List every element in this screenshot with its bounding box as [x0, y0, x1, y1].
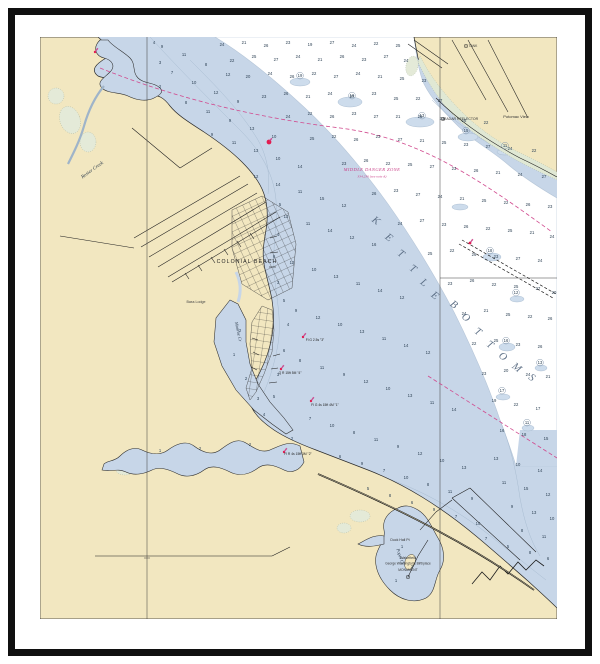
- depth-sounding: 24: [398, 221, 403, 226]
- depth-sounding: 26: [472, 252, 477, 257]
- depth-sounding: 16: [372, 242, 377, 247]
- depth-sounding: 12: [364, 379, 369, 384]
- landmark-dot-icon: [408, 577, 409, 578]
- depth-sounding: 25: [310, 136, 315, 141]
- depth-sounding: 26: [340, 54, 345, 59]
- depth-sounding: 21: [396, 114, 401, 119]
- depth-sounding: 24: [438, 194, 443, 199]
- depth-sounding: 16: [500, 428, 505, 433]
- depth-sounding: 23: [362, 57, 367, 62]
- depth-sounding: 22: [450, 248, 455, 253]
- depth-sounding: 25: [408, 162, 413, 167]
- circled-shoal-sounding-value: 16: [504, 338, 509, 343]
- depth-sounding: 25: [514, 284, 519, 289]
- depth-sounding: 11: [306, 221, 311, 226]
- depth-sounding: 26: [354, 137, 359, 142]
- depth-sounding: 21: [420, 138, 425, 143]
- depth-sounding: 24: [296, 54, 301, 59]
- depth-sounding: 11: [374, 437, 379, 442]
- depth-sounding: 10: [312, 267, 317, 272]
- circled-shoal-sounding-value: 12: [514, 290, 519, 295]
- place-label: COLONIAL BEACH: [217, 259, 278, 265]
- depth-sounding: 13: [284, 214, 289, 219]
- depth-sounding: 27: [334, 74, 339, 79]
- depth-sounding: 27: [330, 40, 335, 45]
- depth-sounding: 11: [320, 365, 325, 370]
- depth-sounding: 23: [286, 40, 291, 45]
- depth-sounding: 19: [492, 398, 497, 403]
- depth-sounding: 25: [482, 198, 487, 203]
- place-label: Q R 15ft 5M "4": [279, 371, 303, 375]
- depth-sounding: 19: [308, 42, 313, 47]
- place-label: Fl G 4s 15ft 4M "1": [311, 403, 339, 407]
- depth-sounding: 23: [448, 281, 453, 286]
- depth-sounding: 23: [372, 91, 377, 96]
- depth-sounding: 25: [506, 312, 511, 317]
- circled-shoal-sounding-value: 15: [464, 128, 469, 133]
- depth-sounding: 13: [360, 329, 365, 334]
- depth-sounding: 11: [356, 281, 361, 286]
- depth-sounding: 11: [382, 336, 387, 341]
- depth-sounding: 13: [408, 393, 413, 398]
- depth-sounding: 25: [442, 140, 447, 145]
- depth-sounding: 26: [526, 202, 531, 207]
- depth-sounding: 23: [342, 161, 347, 166]
- depth-sounding: 11: [448, 489, 453, 494]
- depth-sounding: 26: [548, 316, 553, 321]
- depth-sounding: 24: [352, 43, 357, 48]
- depth-sounding: 10: [476, 521, 481, 526]
- depth-sounding: 26: [470, 278, 475, 283]
- depth-sounding: 22: [386, 161, 391, 166]
- depth-sounding: 14: [276, 182, 281, 187]
- depth-sounding: 12: [546, 492, 551, 497]
- depth-sounding: 23: [464, 142, 469, 147]
- depth-sounding: 27: [430, 164, 435, 169]
- depth-sounding: 21: [318, 57, 323, 62]
- depth-sounding: 27: [374, 114, 379, 119]
- depth-sounding: 11: [206, 109, 211, 114]
- depth-sounding: 13: [250, 126, 255, 131]
- depth-sounding: 24: [404, 58, 409, 63]
- circled-shoal-sounding-value: 19: [298, 73, 303, 78]
- place-label: Fl R 4s 15ft 3M "2": [284, 452, 312, 456]
- depth-sounding: 10: [272, 134, 277, 139]
- depth-sounding: 15: [524, 486, 529, 491]
- place-label: George Washington's Birthplace: [385, 562, 431, 566]
- depth-sounding: 21: [306, 94, 311, 99]
- depth-sounding: 26: [284, 91, 289, 96]
- depth-sounding: 10: [386, 386, 391, 391]
- circled-shoal-sounding-value: 17: [500, 388, 505, 393]
- depth-sounding: 15: [544, 436, 549, 441]
- depth-sounding: 10: [404, 475, 409, 480]
- depth-sounding: 24: [268, 71, 273, 76]
- depth-sounding: 26: [290, 74, 295, 79]
- depth-sounding: 23: [376, 134, 381, 139]
- depth-sounding: 21: [460, 196, 465, 201]
- depth-sounding: 11: [542, 534, 547, 539]
- place-label: Bass Lodge: [187, 300, 206, 304]
- depth-sounding: 20: [246, 74, 251, 79]
- depth-sounding: 12: [254, 174, 259, 179]
- depth-sounding: 13: [462, 465, 467, 470]
- depth-sounding: 26: [264, 43, 269, 48]
- depth-sounding: 22: [308, 111, 313, 116]
- depth-sounding: 12: [418, 451, 423, 456]
- depth-sounding: 25: [508, 228, 513, 233]
- depth-sounding: 12: [350, 235, 355, 240]
- depth-sounding: 21: [378, 74, 383, 79]
- depth-sounding: 21: [484, 308, 489, 313]
- framed-chart-print: 2421262319272422252225272421262327242024…: [0, 0, 600, 664]
- depth-sounding: 22: [514, 402, 519, 407]
- depth-sounding: 22: [472, 341, 477, 346]
- depth-sounding: 13: [254, 148, 259, 153]
- depth-sounding: 10: [276, 156, 281, 161]
- depth-sounding: 27: [536, 286, 541, 291]
- depth-sounding: 27: [516, 256, 521, 261]
- depth-sounding: 27: [486, 144, 491, 149]
- depth-sounding: 25: [428, 251, 433, 256]
- depth-sounding: 14: [328, 228, 333, 233]
- depth-sounding: 23: [482, 371, 487, 376]
- circled-shoal-sounding-value: 16: [350, 93, 355, 98]
- depth-sounding: 22: [486, 226, 491, 231]
- depth-sounding: 11: [502, 480, 507, 485]
- depth-sounding: 20: [552, 290, 557, 295]
- depth-sounding: 23: [516, 342, 521, 347]
- depth-sounding: 17: [536, 406, 541, 411]
- depth-sounding: 23: [548, 204, 553, 209]
- depth-sounding: 27: [398, 137, 403, 142]
- depth-sounding: 10: [330, 423, 335, 428]
- depth-sounding: 24: [356, 71, 361, 76]
- depth-sounding: 26: [364, 158, 369, 163]
- place-label: TANK: [469, 44, 478, 48]
- depth-sounding: 25: [394, 96, 399, 101]
- depth-sounding: 10: [440, 458, 445, 463]
- place-label: MIDDLE DANGER ZONE: [343, 167, 401, 172]
- depth-sounding: 18: [522, 432, 527, 437]
- nautical-chart: 2421262319272422252225272421262327242024…: [40, 37, 557, 619]
- depth-sounding: 13: [532, 510, 537, 515]
- depth-sounding: 14: [452, 407, 457, 412]
- depth-sounding: 21: [242, 40, 247, 45]
- depth-sounding: 13: [334, 274, 339, 279]
- depth-sounding: 26: [538, 344, 543, 349]
- depth-sounding: 11: [430, 400, 435, 405]
- depth-sounding: 23: [262, 94, 267, 99]
- depth-sounding: 25: [252, 54, 257, 59]
- circled-shoal-sounding-value: 18: [488, 248, 493, 253]
- depth-sounding: 24: [518, 172, 523, 177]
- place-label: Fl G 2.5s "3": [306, 338, 325, 342]
- depth-sounding: 15: [320, 196, 325, 201]
- depth-sounding: 27: [416, 192, 421, 197]
- depth-sounding: 12: [426, 350, 431, 355]
- depth-sounding: 12: [400, 295, 405, 300]
- depth-sounding: 26: [330, 114, 335, 119]
- circled-shoal-sounding-value: 11: [503, 143, 508, 148]
- depth-sounding: 21: [496, 170, 501, 175]
- depth-sounding: 21: [546, 374, 551, 379]
- depth-sounding: 27: [384, 54, 389, 59]
- depth-sounding: 24: [538, 258, 543, 263]
- depth-sounding: 10: [192, 80, 197, 85]
- circled-shoal-sounding-value: 13: [420, 113, 425, 118]
- place-label: 334.230 (see note A): [358, 175, 388, 179]
- depth-sounding: 12: [290, 260, 295, 265]
- depth-sounding: 12: [342, 203, 347, 208]
- depth-sounding: 10: [338, 322, 343, 327]
- depth-sounding: 27: [438, 98, 443, 103]
- depth-sounding: 23: [442, 222, 447, 227]
- depth-sounding: 11: [232, 140, 237, 145]
- depth-sounding: 26: [464, 224, 469, 229]
- depth-sounding: 24: [508, 146, 513, 151]
- depth-sounding: 26: [372, 191, 377, 196]
- depth-sounding: 22: [484, 120, 489, 125]
- depth-sounding: 23: [422, 78, 427, 83]
- depth-sounding: 10: [516, 462, 521, 467]
- place-label: MONUMENT: [398, 568, 417, 572]
- depth-sounding: 11: [298, 189, 303, 194]
- depth-sounding: 12: [226, 72, 231, 77]
- place-label: Duck Hall Pt: [390, 538, 409, 542]
- depth-sounding: 23: [394, 188, 399, 193]
- depth-sounding: 23: [494, 254, 499, 259]
- depth-sounding: 24: [220, 42, 225, 47]
- depth-sounding: 12: [316, 315, 321, 320]
- depth-sounding: 23: [352, 111, 357, 116]
- depth-sounding: 27: [274, 57, 279, 62]
- depth-sounding: 25: [396, 43, 401, 48]
- depth-sounding: 22: [528, 314, 533, 319]
- depth-sounding: 11: [182, 52, 187, 57]
- depth-sounding: 22: [532, 148, 537, 153]
- depth-sounding: 13: [494, 456, 499, 461]
- depth-sounding: 22: [504, 200, 509, 205]
- place-label: RADAR REFLECTOR: [444, 117, 479, 121]
- depth-sounding: 22: [312, 71, 317, 76]
- circled-shoal-sounding-value: 13: [538, 360, 543, 365]
- depth-sounding: 26: [474, 168, 479, 173]
- depth-sounding: 20: [504, 368, 509, 373]
- depth-sounding: 21: [530, 230, 535, 235]
- place-label: Potomac View: [503, 114, 529, 119]
- depth-sounding: 10: [550, 516, 555, 521]
- depth-sounding: 25: [400, 76, 405, 81]
- depth-sounding: 22: [416, 96, 421, 101]
- depth-sounding: 24: [550, 234, 555, 239]
- depth-sounding: 14: [404, 343, 409, 348]
- depth-sounding: 24: [286, 114, 291, 119]
- circled-shoal-sounding-value: 11: [525, 420, 530, 425]
- depth-sounding: 14: [378, 288, 383, 293]
- depth-sounding: 24: [328, 91, 333, 96]
- landmark-dot-icon: [466, 46, 467, 47]
- depth-sounding: 14: [298, 164, 303, 169]
- depth-sounding: 22: [374, 41, 379, 46]
- depth-sounding: 22: [230, 58, 235, 63]
- depth-sounding: 14: [538, 468, 543, 473]
- depth-sounding: 22: [492, 282, 497, 287]
- depth-sounding: 27: [420, 218, 425, 223]
- depth-sounding: 12: [214, 90, 219, 95]
- depth-sounding: 23: [452, 166, 457, 171]
- depth-sounding: 22: [332, 134, 337, 139]
- depth-sounding: 27: [542, 174, 547, 179]
